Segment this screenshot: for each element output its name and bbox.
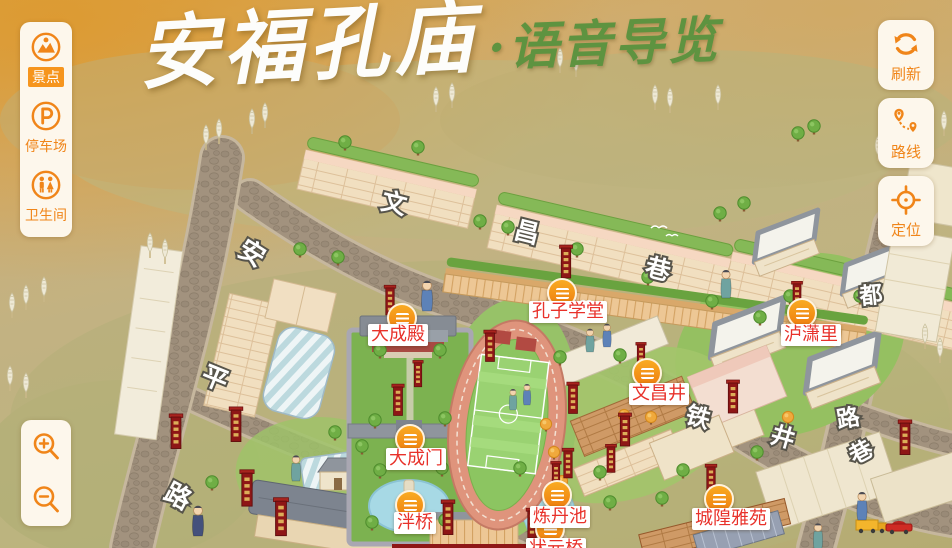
vehicles bbox=[856, 520, 912, 534]
audio-waves-icon bbox=[396, 313, 409, 324]
sidebar-item-scenic[interactable]: 景点 bbox=[28, 31, 64, 87]
poi-label-chenghuangyayuan[interactable]: 城隍雅苑 bbox=[692, 508, 770, 530]
map-illustration[interactable]: 安 平 路 文 昌 巷 铁 井 都 路 巷 bbox=[0, 0, 952, 548]
audio-waves-icon bbox=[551, 490, 564, 501]
poi-label-liandanchi[interactable]: 炼丹池 bbox=[530, 506, 590, 528]
audio-waves-icon bbox=[641, 368, 654, 379]
audio-waves-icon bbox=[404, 434, 417, 445]
sidebar-item-restroom[interactable]: 卫生间 bbox=[25, 169, 67, 225]
voice-guide-map-app: 安 平 路 文 昌 巷 铁 井 都 路 巷 安福孔庙 ·语音导览 大成殿 孔子学… bbox=[0, 0, 952, 548]
zoom-panel bbox=[21, 420, 71, 526]
refresh-icon bbox=[889, 27, 923, 61]
poi-label-dachengdian[interactable]: 大成殿 bbox=[368, 324, 428, 346]
route-label: 路线 bbox=[891, 141, 921, 162]
zoom-out-icon bbox=[31, 484, 61, 516]
zoom-in-icon bbox=[31, 431, 61, 463]
audio-waves-icon bbox=[796, 308, 809, 319]
locate-button[interactable]: 定位 bbox=[878, 176, 934, 246]
sidebar-item-parking[interactable]: 停车场 bbox=[25, 100, 67, 156]
parking-icon bbox=[30, 100, 62, 132]
zoom-out-button[interactable] bbox=[29, 480, 63, 520]
street-name-char: 都 bbox=[857, 282, 884, 310]
poi-label-dachengmen[interactable]: 大成门 bbox=[386, 448, 446, 470]
zoom-in-button[interactable] bbox=[29, 427, 63, 467]
route-icon bbox=[889, 105, 923, 139]
locate-label: 定位 bbox=[891, 219, 921, 240]
street-name-char: 安 bbox=[232, 234, 270, 273]
restroom-icon bbox=[30, 169, 62, 201]
poi-label-luxiaoli[interactable]: 泸潇里 bbox=[781, 324, 841, 346]
audio-waves-icon bbox=[713, 494, 726, 505]
audio-waves-icon bbox=[404, 500, 417, 511]
poi-label-zhuangyuanqiao[interactable]: 状元桥 bbox=[526, 538, 586, 548]
sidebar-item-label: 景点 bbox=[28, 67, 64, 87]
poi-label-kongzixuetang[interactable]: 孔子学堂 bbox=[529, 301, 607, 323]
audio-waves-icon bbox=[556, 288, 569, 299]
sidebar-item-label: 卫生间 bbox=[25, 205, 67, 225]
refresh-label: 刷新 bbox=[891, 63, 921, 84]
route-button[interactable]: 路线 bbox=[878, 98, 934, 168]
refresh-button[interactable]: 刷新 bbox=[878, 20, 934, 90]
poi-label-wenchangjing[interactable]: 文昌井 bbox=[629, 383, 689, 405]
scenic-icon bbox=[30, 31, 62, 63]
locate-icon bbox=[889, 183, 923, 217]
poi-filter-panel: 景点 停车场 卫生间 bbox=[20, 22, 72, 237]
poi-label-panqiao[interactable]: 泮桥 bbox=[394, 512, 436, 534]
sidebar-item-label: 停车场 bbox=[25, 136, 67, 156]
